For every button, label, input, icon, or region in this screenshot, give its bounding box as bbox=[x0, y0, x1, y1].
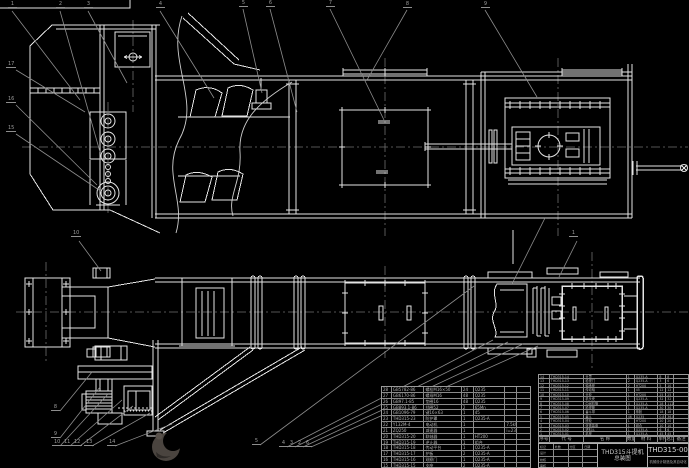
table-cell: Q235 bbox=[474, 387, 506, 392]
table-cell: 4 bbox=[627, 402, 635, 405]
callout-number: 6 bbox=[303, 441, 312, 447]
table-cell: THD315-03 bbox=[550, 424, 585, 427]
table-cell: Q235-A bbox=[635, 375, 659, 378]
table-cell: THD315-02 bbox=[550, 428, 585, 431]
drawing-number: THD315-00 bbox=[648, 444, 688, 457]
table-cell: 12 bbox=[539, 384, 550, 387]
table-cell: 18 bbox=[382, 445, 392, 450]
table-cell: THD315-13 bbox=[550, 379, 585, 382]
table-cell: 2 bbox=[462, 405, 474, 410]
table-cell: THD315-16 bbox=[392, 457, 425, 462]
table-cell: 25 bbox=[658, 393, 666, 396]
table-cell: 20 bbox=[658, 419, 666, 422]
table-cell: 1 bbox=[627, 410, 635, 413]
table-cell: HT200 bbox=[635, 419, 659, 422]
table-cell: 5 bbox=[539, 415, 550, 418]
organization: 机械设计制造及其自动化 bbox=[648, 457, 688, 467]
table-cell bbox=[505, 451, 517, 456]
drawing-title-cell: THD315斗提机 总装图 bbox=[598, 444, 648, 467]
callout-number: 8 bbox=[403, 2, 412, 8]
signature-row: 审核 bbox=[539, 463, 597, 468]
table-cell: 联轴器 bbox=[424, 434, 461, 439]
callout-number: 11 bbox=[62, 440, 72, 446]
table-cell: 螺母M16 bbox=[424, 393, 461, 398]
table-cell: Q235-A bbox=[474, 457, 506, 462]
callout-number: 16 bbox=[6, 97, 16, 103]
table-cell: GB97.1-85 bbox=[392, 399, 425, 404]
table-cell: 11 bbox=[539, 388, 550, 391]
table-cell: 键16×63 bbox=[424, 410, 461, 415]
table-cell: 17 bbox=[382, 451, 392, 456]
signature-cell bbox=[569, 457, 584, 462]
table-cell: 3 bbox=[539, 424, 550, 427]
table-cell: THD315-07 bbox=[550, 406, 585, 409]
table-cell: THD315-19 bbox=[392, 440, 425, 445]
callout-number: 17 bbox=[6, 62, 16, 68]
table-cell: 检视门 bbox=[584, 379, 626, 382]
table-cell bbox=[517, 393, 530, 398]
table-cell: 1 bbox=[462, 440, 474, 445]
table-cell: THD315-12 bbox=[550, 384, 585, 387]
table-cell: Q235-A bbox=[635, 397, 659, 400]
table-cell: 进料斗 bbox=[584, 428, 626, 431]
table-cell: 24 bbox=[382, 410, 392, 415]
table-cell: 5 bbox=[658, 384, 666, 387]
table-cell: THD315-14 bbox=[550, 375, 585, 378]
table-cell: 6 bbox=[539, 410, 550, 413]
callout-number: 2 bbox=[56, 2, 65, 8]
table-cell bbox=[674, 384, 688, 387]
table-cell: Q235-A bbox=[635, 406, 659, 409]
table-cell: 46 bbox=[627, 415, 635, 418]
table-cell bbox=[674, 415, 688, 418]
table-cell bbox=[674, 419, 688, 422]
table-cell bbox=[674, 402, 688, 405]
table-cell: 组合 bbox=[635, 424, 659, 427]
table-cell: 8 bbox=[539, 402, 550, 405]
table-cell bbox=[505, 410, 517, 415]
table-cell: 13 bbox=[539, 379, 550, 382]
table-cell: 25 bbox=[382, 405, 392, 410]
table-cell bbox=[474, 428, 506, 433]
table-cell: 24 bbox=[462, 387, 474, 392]
table-cell bbox=[517, 445, 530, 450]
table-cell: 畚斗带 bbox=[584, 410, 626, 413]
table-cell bbox=[505, 405, 517, 410]
signature-cell bbox=[569, 450, 584, 455]
callout-number: 12 bbox=[72, 440, 82, 446]
table-cell: 28 bbox=[658, 402, 666, 405]
watermark-logo bbox=[152, 431, 183, 461]
table-cell: 1 bbox=[627, 388, 635, 391]
table-cell: 1 bbox=[627, 428, 635, 431]
table-cell: Q235-A bbox=[474, 451, 506, 456]
table-cell: HT200 bbox=[635, 384, 659, 387]
signature-cell: 校核 bbox=[539, 457, 554, 462]
table-cell bbox=[674, 406, 688, 409]
table-cell: 1 bbox=[462, 416, 474, 421]
table-cell: THD315-20 bbox=[392, 434, 425, 439]
table-cell: THD315-15 bbox=[392, 463, 425, 468]
table-cell: 112 bbox=[666, 402, 674, 405]
table-cell bbox=[674, 379, 688, 382]
table-cell: 65Mn bbox=[474, 405, 506, 410]
table-cell: THD315-18 bbox=[392, 445, 425, 450]
callout-number: 5 bbox=[252, 439, 261, 445]
table-cell bbox=[517, 399, 530, 404]
table-cell: GB893.1-86 bbox=[392, 405, 425, 410]
table-cell: 观察门 bbox=[424, 457, 461, 462]
table-cell: Q235-A bbox=[474, 445, 506, 450]
callout-number: 1 bbox=[569, 231, 578, 237]
table-cell: 18 bbox=[666, 410, 674, 413]
table-cell: 头罩 bbox=[584, 375, 626, 378]
table-cell: 32 bbox=[658, 397, 666, 400]
bom-table-left: 28GB5782-86螺栓M16×5024Q23527GB6170-86螺母M1… bbox=[381, 386, 531, 468]
table-cell: 轴承座 bbox=[584, 384, 626, 387]
table-cell bbox=[474, 422, 506, 427]
table-cell: 12 bbox=[666, 388, 674, 391]
table-cell: 32 bbox=[666, 397, 674, 400]
table-cell: ZQ250 bbox=[392, 428, 425, 433]
cad-screenshot: 12345678917161510189101112131454326 28GB… bbox=[0, 0, 689, 468]
table-cell: 1 bbox=[462, 428, 474, 433]
table-cell: THD315-10 bbox=[550, 393, 585, 396]
table-cell bbox=[517, 387, 530, 392]
table-cell: 螺栓M16×50 bbox=[424, 387, 461, 392]
table-cell: 23 bbox=[382, 416, 392, 421]
table-cell: 6 bbox=[666, 379, 674, 382]
signature-cell: 分区 bbox=[569, 444, 584, 449]
table-cell: 22 bbox=[382, 422, 392, 427]
table-cell: 10 bbox=[658, 424, 666, 427]
table-cell: 底轮 bbox=[584, 419, 626, 422]
table-cell bbox=[517, 463, 530, 468]
table-cell: THD315-08 bbox=[550, 402, 585, 405]
table-cell: 2 bbox=[627, 379, 635, 382]
table-cell: Q235 bbox=[474, 399, 506, 404]
upper-view bbox=[30, 13, 687, 264]
table-cell: 14 bbox=[539, 375, 550, 378]
table-cell: 支座 bbox=[424, 463, 461, 468]
sheet-frame bbox=[0, 0, 130, 8]
table-cell: 2 bbox=[462, 463, 474, 468]
leader-lines bbox=[12, 9, 577, 447]
table-cell: 2 bbox=[627, 384, 635, 387]
callout-number: 8 bbox=[51, 405, 60, 411]
signature-cell: 审核 bbox=[539, 463, 554, 468]
table-cell: 48 bbox=[462, 399, 474, 404]
table-cell: 7.5kW bbox=[505, 422, 517, 427]
signature-cell: 设计 bbox=[539, 450, 554, 455]
table-cell: 1 bbox=[627, 397, 635, 400]
table-cell: 21 bbox=[382, 428, 392, 433]
table-cell: 15 bbox=[382, 463, 392, 468]
table-cell: 传动轴 bbox=[584, 388, 626, 391]
table-cell: 6 bbox=[666, 428, 674, 431]
table-cell: 3 bbox=[658, 379, 666, 382]
table-cell: 19 bbox=[382, 440, 392, 445]
table-cell: THD315-06 bbox=[550, 410, 585, 413]
table-cell: 机头壳 bbox=[584, 397, 626, 400]
table-cell: 橡胶 bbox=[635, 410, 659, 413]
table-cell bbox=[517, 410, 530, 415]
table-cell: HT200 bbox=[474, 434, 506, 439]
table-cell: 20 bbox=[666, 419, 674, 422]
table-cell: Q235-A bbox=[635, 379, 659, 382]
callout-number: 10 bbox=[71, 231, 81, 237]
table-cell: 1 bbox=[462, 410, 474, 415]
callout-number: 3 bbox=[84, 2, 93, 8]
table-cell: 畚斗 bbox=[584, 415, 626, 418]
table-cell: 8 bbox=[658, 375, 666, 378]
table-cell: HT200 bbox=[635, 393, 659, 396]
signature-cell: 标记 bbox=[539, 444, 554, 449]
table-cell: 12 bbox=[658, 388, 666, 391]
table-cell bbox=[674, 375, 688, 378]
table-cell: 10 bbox=[666, 424, 674, 427]
table-cell: 传动平台 bbox=[424, 445, 461, 450]
table-cell: Y132M-4 bbox=[392, 422, 425, 427]
table-cell bbox=[674, 397, 688, 400]
table-cell: THD315-04 bbox=[550, 419, 585, 422]
table-cell: 45 bbox=[635, 388, 659, 391]
table-cell: 16 bbox=[382, 457, 392, 462]
callout-number: 7 bbox=[326, 1, 335, 7]
table-cell: 30 bbox=[658, 406, 666, 409]
callout-number: 6 bbox=[266, 1, 275, 7]
table-cell: 10 bbox=[539, 393, 550, 396]
table-cell: i=23.3 bbox=[505, 428, 517, 433]
table-cell bbox=[505, 399, 517, 404]
table-cell: 组合 bbox=[474, 440, 506, 445]
table-cell: 45 bbox=[474, 410, 506, 415]
table-cell: 27 bbox=[382, 393, 392, 398]
signature-cell: 日期 bbox=[583, 444, 597, 449]
table-cell bbox=[517, 428, 530, 433]
table-cell: 28 bbox=[382, 387, 392, 392]
drawing-title: THD315斗提机 bbox=[601, 449, 643, 456]
table-cell bbox=[505, 393, 517, 398]
table-cell: 1 bbox=[462, 445, 474, 450]
table-cell: 2 bbox=[462, 451, 474, 456]
drawing-number-cell: THD315-00 机械设计制造及其自动化 bbox=[648, 444, 688, 467]
table-cell bbox=[505, 445, 517, 450]
table-cell: 1 bbox=[627, 419, 635, 422]
table-cell: 电动机 bbox=[424, 422, 461, 427]
table-cell bbox=[505, 463, 517, 468]
signature-cell bbox=[554, 457, 569, 462]
table-cell: 垫圈16 bbox=[424, 399, 461, 404]
signature-cell bbox=[554, 463, 569, 468]
callout-number: 10 bbox=[52, 440, 62, 446]
signature-cell bbox=[569, 463, 584, 468]
bom-header-row: 序号代 号名 称数量材 料单件总计备注 bbox=[538, 436, 689, 443]
table-cell: Q235-A bbox=[474, 416, 506, 421]
table-cell: Q235 bbox=[635, 415, 659, 418]
table-cell bbox=[674, 428, 688, 431]
callout-number: 1 bbox=[8, 2, 17, 8]
table-cell: THD315-05 bbox=[550, 415, 585, 418]
signature-cell bbox=[583, 450, 597, 455]
drawing-subtitle: 总装图 bbox=[614, 456, 631, 463]
table-cell: GB1096-79 bbox=[392, 410, 425, 415]
bom-table-right: 14THD315-14头罩1Q235-A8813THD315-13检视门2Q23… bbox=[538, 374, 689, 436]
table-cell bbox=[674, 388, 688, 391]
table-cell bbox=[517, 434, 530, 439]
callout-number: 9 bbox=[51, 432, 60, 438]
table-cell: 头轮 bbox=[584, 393, 626, 396]
table-cell bbox=[674, 393, 688, 396]
title-block: 标记处数分区日期设计校核审核 THD315斗提机 总装图 THD315-00 机… bbox=[538, 443, 689, 468]
table-row: 15THD315-15支座2Q235-A bbox=[382, 463, 530, 468]
table-cell: 18 bbox=[658, 410, 666, 413]
callout-number: 9 bbox=[481, 2, 490, 8]
table-cell: 中间机筒 bbox=[584, 402, 626, 405]
signature-grid: 标记处数分区日期设计校核审核 bbox=[539, 444, 598, 467]
table-cell bbox=[517, 440, 530, 445]
table-cell: 检视筒 bbox=[584, 406, 626, 409]
table-cell: GB5782-86 bbox=[392, 387, 425, 392]
table-cell: 30 bbox=[666, 406, 674, 409]
table-cell: Q235-A bbox=[635, 428, 659, 431]
table-cell bbox=[517, 405, 530, 410]
table-cell: 8 bbox=[666, 375, 674, 378]
table-cell bbox=[674, 410, 688, 413]
callout-number: 5 bbox=[239, 1, 248, 7]
table-cell: 护板 bbox=[424, 451, 461, 456]
table-cell: 防护罩 bbox=[424, 416, 461, 421]
table-cell bbox=[505, 387, 517, 392]
table-cell bbox=[505, 434, 517, 439]
table-cell: Q235-A bbox=[635, 402, 659, 405]
table-cell: 1 bbox=[627, 375, 635, 378]
table-cell: 张紧装置 bbox=[584, 424, 626, 427]
signature-cell bbox=[583, 463, 597, 468]
table-cell: 1 bbox=[627, 406, 635, 409]
table-cell: 48 bbox=[462, 393, 474, 398]
signature-cell bbox=[554, 450, 569, 455]
table-cell: Q235-A bbox=[474, 463, 506, 468]
table-cell: 逆止器 bbox=[424, 440, 461, 445]
table-cell: 26 bbox=[382, 399, 392, 404]
table-cell: 1 bbox=[462, 422, 474, 427]
table-cell: 1 bbox=[462, 457, 474, 462]
table-cell: Q235 bbox=[474, 393, 506, 398]
table-cell bbox=[517, 416, 530, 421]
table-cell: 6 bbox=[658, 428, 666, 431]
table-cell: 2 bbox=[539, 428, 550, 431]
table-cell bbox=[517, 451, 530, 456]
table-cell: GB6170-86 bbox=[392, 393, 425, 398]
table-cell: 7 bbox=[539, 406, 550, 409]
callout-number: 15 bbox=[6, 126, 16, 132]
table-cell: 10 bbox=[666, 384, 674, 387]
table-cell: 1 bbox=[627, 424, 635, 427]
table-cell bbox=[517, 457, 530, 462]
table-cell bbox=[505, 457, 517, 462]
callout-number: 13 bbox=[84, 440, 94, 446]
table-cell: THD315-17 bbox=[392, 451, 425, 456]
table-cell bbox=[505, 440, 517, 445]
table-cell bbox=[674, 424, 688, 427]
table-cell: 9 bbox=[539, 397, 550, 400]
table-cell: 25 bbox=[666, 393, 674, 396]
table-cell: 减速器 bbox=[424, 428, 461, 433]
table-cell bbox=[517, 422, 530, 427]
table-cell: 1 bbox=[462, 434, 474, 439]
table-cell: 4 bbox=[539, 419, 550, 422]
table-cell: THD315-11 bbox=[550, 388, 585, 391]
table-cell: 0.8 bbox=[658, 415, 666, 418]
table-cell: 挡圈52 bbox=[424, 405, 461, 410]
table-cell: 1 bbox=[627, 393, 635, 396]
signature-cell: 处数 bbox=[554, 444, 569, 449]
callout-number: 4 bbox=[156, 2, 165, 8]
callout-number: 14 bbox=[107, 440, 117, 446]
table-cell bbox=[505, 416, 517, 421]
break-lines bbox=[173, 16, 292, 233]
table-cell: THD315-09 bbox=[550, 397, 585, 400]
signature-cell bbox=[583, 457, 597, 462]
table-cell: 20 bbox=[382, 434, 392, 439]
table-cell: THD315-23 bbox=[392, 416, 425, 421]
table-cell: 36.8 bbox=[666, 415, 674, 418]
